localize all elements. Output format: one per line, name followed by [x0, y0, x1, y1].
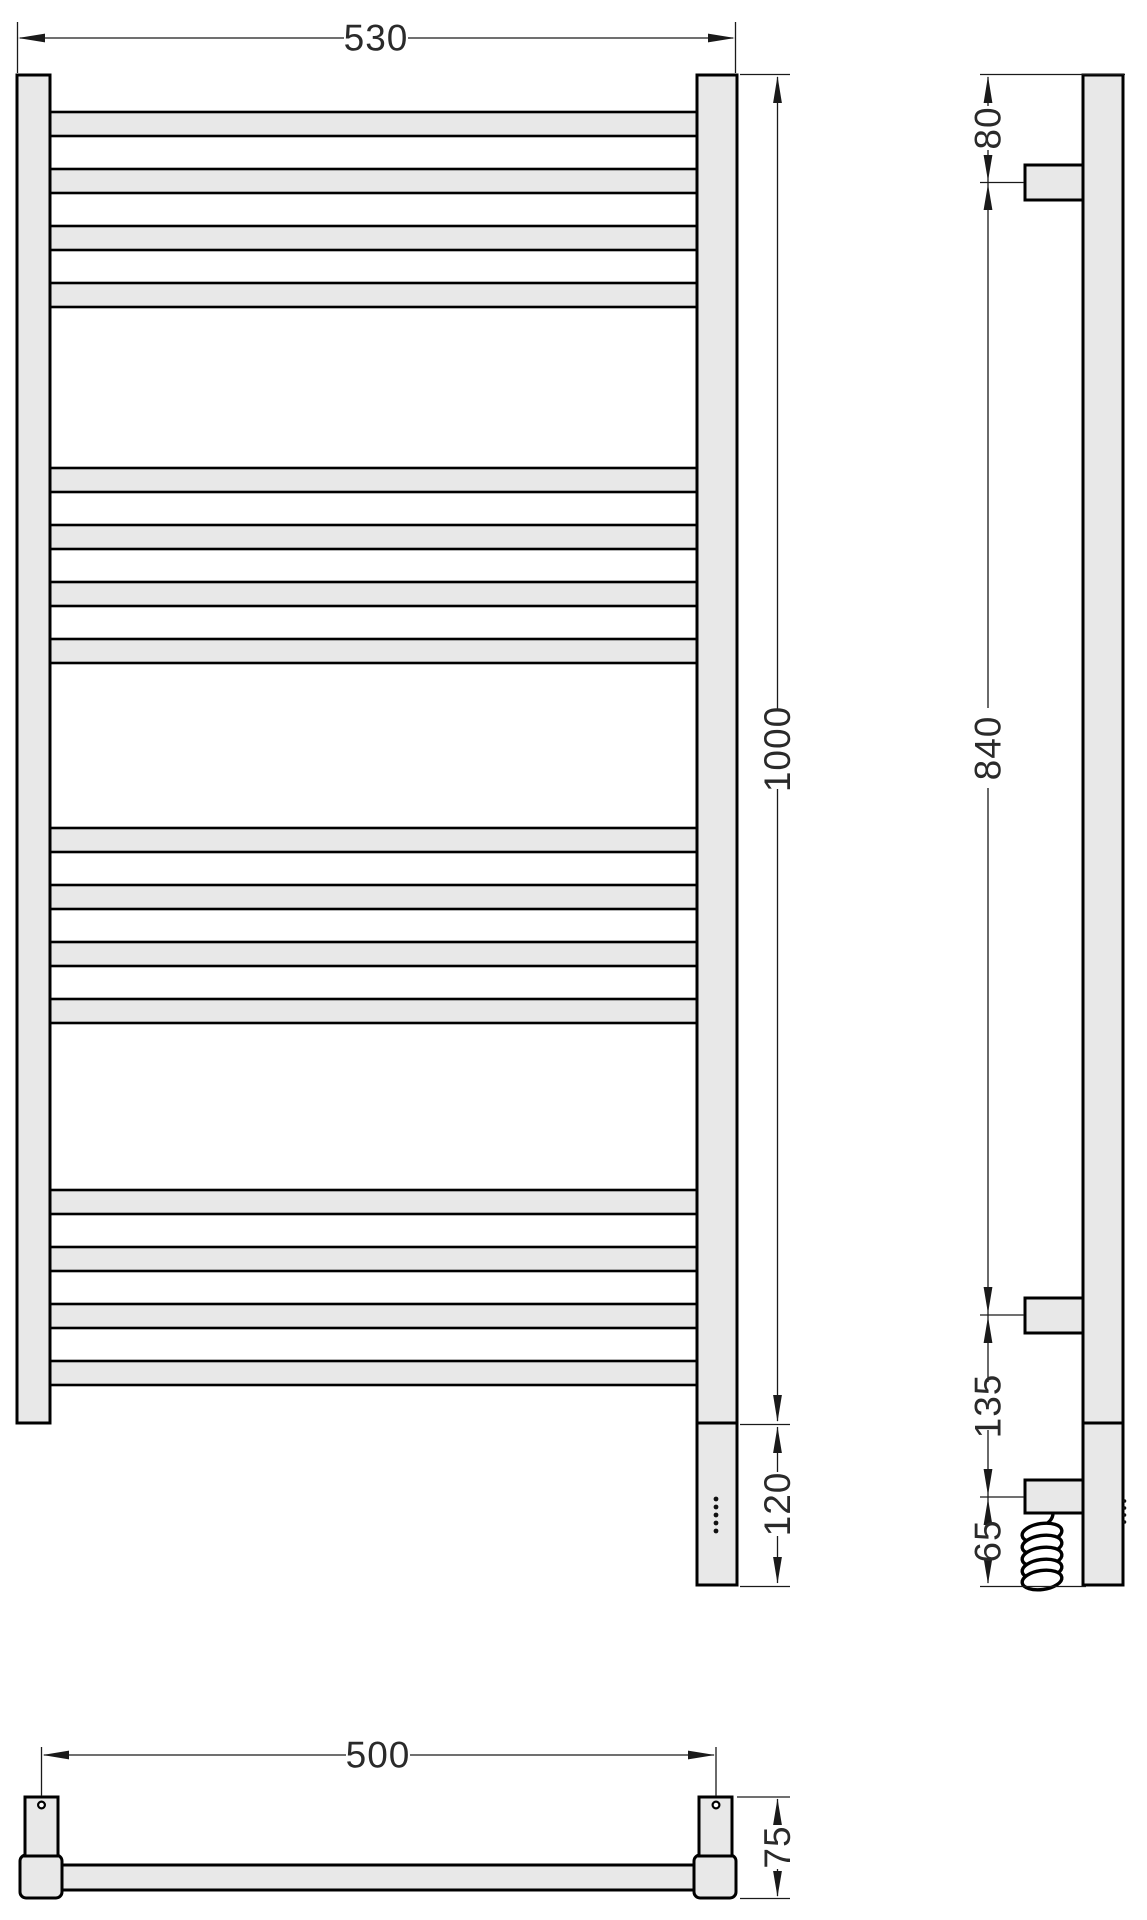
front-rung: [50, 283, 697, 307]
front-right-post: [697, 75, 737, 1423]
dim-label-front-width: 530: [344, 18, 409, 59]
indicator-dot: [1123, 1513, 1127, 1517]
dim-label-mounting-width: 500: [346, 1735, 411, 1776]
side-view: [1021, 75, 1126, 1592]
dim-front-height: 1000: [740, 75, 798, 1425]
indicator-dot: [1123, 1520, 1127, 1524]
screw-hole-left: [38, 1802, 45, 1809]
dim-label-top-to-bracket: 80: [968, 106, 1009, 149]
screw-hole-right: [713, 1802, 720, 1809]
towel-rail-drawing: 530 1000 120: [0, 0, 1147, 1920]
indicator-dot: [714, 1521, 719, 1526]
front-rung: [50, 885, 697, 909]
dim-label-cable-to-bottom: 65: [968, 1519, 1009, 1562]
front-rung: [50, 525, 697, 549]
indicator-dot: [714, 1497, 719, 1502]
heater-unit-side: [1083, 1423, 1123, 1585]
bottom-view: [20, 1797, 736, 1898]
front-rung: [50, 169, 697, 193]
dim-front-width: 530: [18, 18, 736, 74]
front-view: [17, 75, 737, 1585]
front-rung: [50, 582, 697, 606]
front-rung: [50, 1247, 697, 1271]
side-post: [1083, 75, 1123, 1423]
front-left-post: [17, 75, 50, 1423]
dim-heater-unit-height: 120: [740, 1427, 798, 1587]
front-rung: [50, 1190, 697, 1214]
front-rung: [50, 468, 697, 492]
power-cable-coil: [1021, 1513, 1063, 1592]
front-rung: [50, 226, 697, 250]
front-rung: [50, 1361, 697, 1385]
front-rung: [50, 942, 697, 966]
bracket-foot-right: [694, 1855, 736, 1898]
front-rung: [50, 828, 697, 852]
front-rung: [50, 112, 697, 136]
front-rung: [50, 1304, 697, 1328]
dim-bracket-depth: 75: [737, 1797, 798, 1899]
front-rungs: [50, 112, 697, 1385]
front-rung: [50, 639, 697, 663]
indicator-dot: [1123, 1499, 1127, 1503]
front-rung: [50, 999, 697, 1023]
mounting-bar: [58, 1865, 700, 1890]
cable-gland: [1025, 1480, 1085, 1513]
bracket-foot-left: [20, 1855, 62, 1898]
indicator-dot: [1123, 1506, 1127, 1510]
indicator-dot: [714, 1513, 719, 1518]
dim-label-front-height: 1000: [757, 706, 798, 792]
heater-unit-front: [697, 1423, 737, 1585]
dim-label-bracket-depth: 75: [757, 1825, 798, 1868]
dim-label-bracket-spacing: 840: [968, 716, 1009, 781]
dim-mounting-width: 500: [42, 1735, 717, 1797]
wall-bracket-top: [1025, 165, 1085, 200]
indicator-dot: [714, 1505, 719, 1510]
indicator-dot: [714, 1529, 719, 1534]
dim-label-heater-unit-height: 120: [757, 1472, 798, 1537]
wall-bracket-bottom: [1025, 1298, 1085, 1333]
dim-label-bracket-to-cable: 135: [968, 1374, 1009, 1439]
